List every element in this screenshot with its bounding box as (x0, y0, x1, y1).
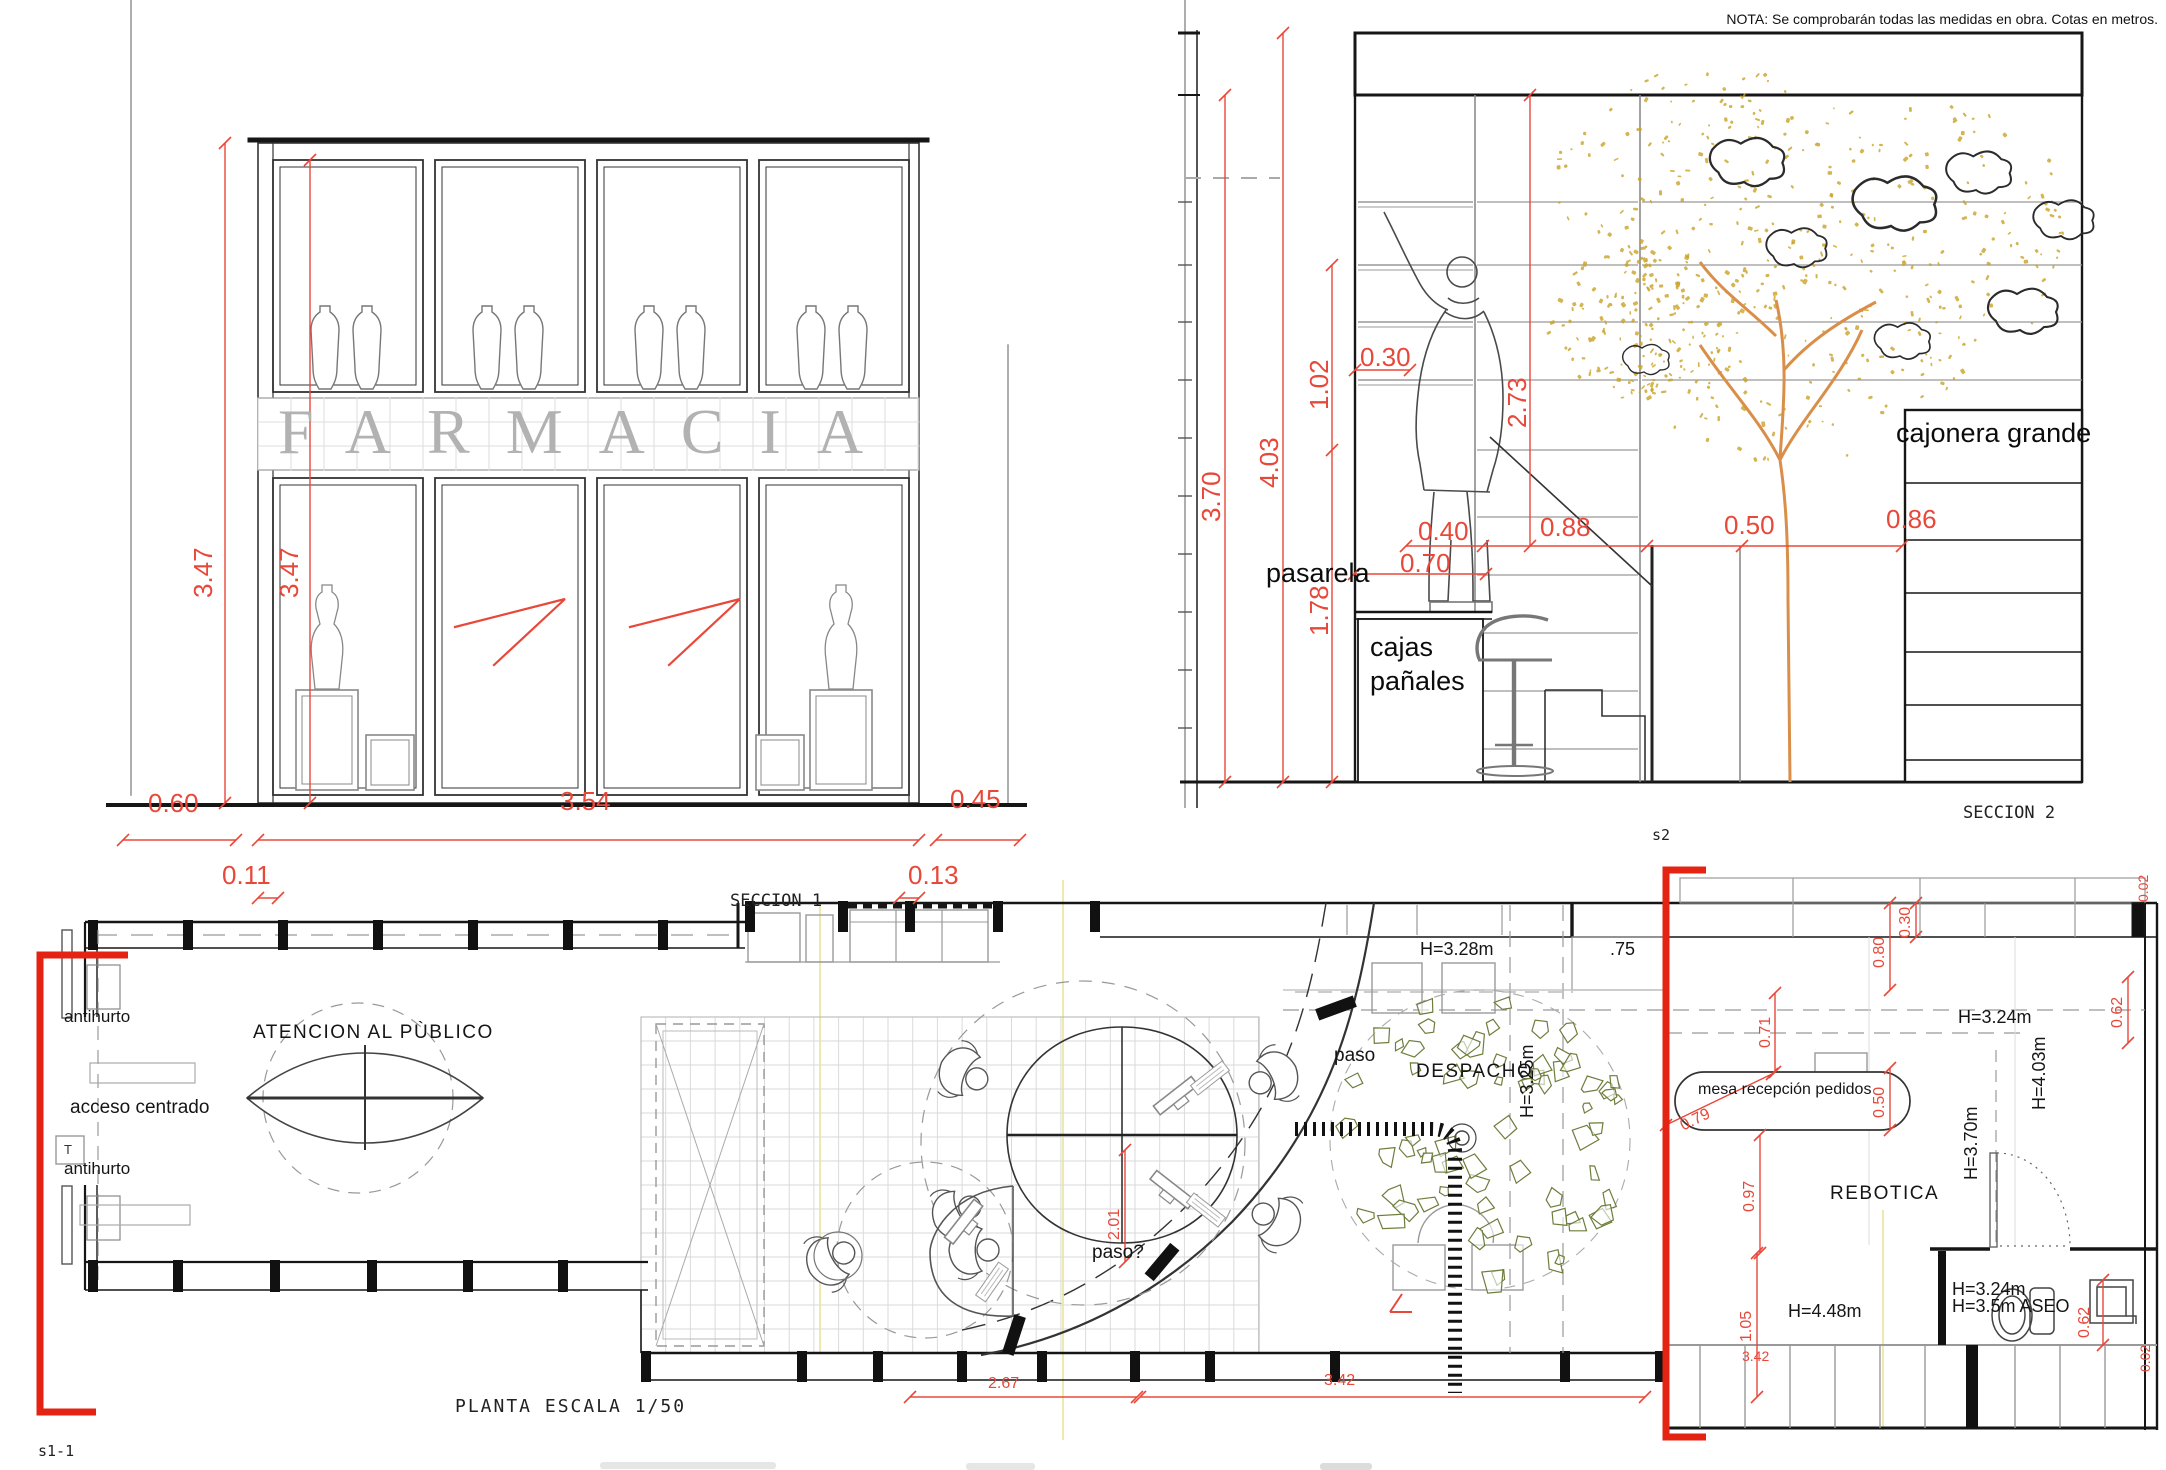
label-rebotica: REBOTICA (1830, 1184, 1939, 1203)
label-h325: H=3.25m (1518, 1044, 1536, 1118)
rebotica-shelving (1666, 1345, 2157, 1428)
dim-plan-267: 2.67 (988, 1376, 1019, 1392)
label-75: .75 (1610, 940, 1635, 958)
label-panales: pañales (1370, 668, 1465, 695)
label-pasarela: pasarela (1266, 560, 1370, 587)
label-antihurto-bottom: antihurto (64, 1160, 130, 1177)
section1-title: SECCION 1 (730, 893, 822, 910)
dim-plan-080: 0.80 (1872, 937, 1888, 968)
dim-plan-071: 0.71 (1758, 1017, 1774, 1048)
dim-s2-273: 2.73 (1504, 377, 1530, 428)
sink (2090, 1280, 2136, 1324)
dim-s2-040: 0.40 (1418, 518, 1469, 544)
dim-plan-050: 0.50 (1872, 1087, 1888, 1118)
dim-plan-342: 3.42 (1324, 1373, 1355, 1389)
dim-s2-370: 3.70 (1198, 471, 1224, 522)
cad-drawing-canvas: NOTA: Se comprobarán todas las medidas e… (0, 0, 2166, 1470)
dim-s2-030: 0.30 (1360, 344, 1411, 370)
dim-plan-105: 1.05 (1739, 1311, 1755, 1342)
display-pedestal-right (756, 690, 872, 790)
cajonera-grande-unit (1905, 410, 2082, 782)
dim-plan-097: 0.97 (1742, 1181, 1758, 1212)
dim-s2-178: 1.78 (1306, 585, 1332, 636)
label-paso-q: paso? (1092, 1243, 1144, 1262)
dim-s2-086: 0.86 (1886, 506, 1937, 532)
plan-title: PLANTA ESCALA 1/50 (455, 1398, 686, 1416)
farmacia-sign: FARMACIA (258, 400, 919, 464)
scrollbar-track-segment[interactable] (600, 1462, 776, 1469)
dim-s1-left: 0.60 (148, 790, 199, 816)
dim-plan-062b: 0.62 (2077, 1307, 2093, 1338)
scrollbar-thumb[interactable] (966, 1463, 1035, 1470)
dim-plan-062: 0.62 (2110, 997, 2126, 1028)
scrollbar-thumb-2[interactable] (1320, 1463, 1372, 1470)
curved-wall (952, 903, 1374, 1356)
marker-s2-label: s2 (1652, 828, 1670, 843)
label-h35-aseo: H=3.5m ASEO (1952, 1297, 2070, 1315)
dim-s1-main: 3.54 (560, 788, 611, 814)
label-h448: H=4.48m (1788, 1302, 1862, 1320)
dim-s1-offset-right: 0.13 (908, 862, 959, 888)
dim-s1-height-inner: 3.47 (276, 547, 302, 598)
dim-s2-088: 0.88 (1540, 514, 1591, 540)
label-paso: paso (1334, 1046, 1375, 1065)
nota-text: NOTA: Se comprobarán todas las medidas e… (1726, 12, 2158, 26)
drawing-linework (0, 0, 2166, 1470)
label-mesa-recepcion: mesa recepción pedidos (1698, 1082, 1871, 1098)
label-cajonera-grande: cajonera grande (1896, 420, 2091, 447)
dim-plan-342b: 3.42 (1742, 1349, 1769, 1363)
dim-s1-height: 3.47 (190, 547, 216, 598)
label-acceso-centrado: acceso centrado (70, 1098, 209, 1117)
label-antihurto-top: antihurto (64, 1008, 130, 1025)
dim-plan-201: 2.01 (1107, 1209, 1123, 1240)
dim-plan-002b: 0.02 (2138, 1345, 2152, 1372)
dim-s2-070: 0.70 (1400, 550, 1451, 576)
label-h370: H=3.70m (1962, 1106, 1980, 1180)
plan-tree (1330, 990, 1630, 1293)
label-h324: H=3.24m (1958, 1008, 2032, 1026)
top-wall-cd (1100, 878, 2157, 990)
label-atencion-publico: ATENCION AL PÙBLICO (253, 1023, 494, 1042)
dim-s1-right: 0.45 (950, 786, 1001, 812)
dim-s2-102: 1.02 (1306, 359, 1332, 410)
dim-s2-403: 4.03 (1256, 437, 1282, 488)
bottom-walls (85, 1260, 1666, 1382)
dim-plan-030: 0.30 (1898, 907, 1914, 938)
dim-plan-002a: 0.02 (2136, 875, 2150, 902)
extra-red-marks (1390, 1294, 1412, 1312)
label-despacho: DESPACHO (1416, 1062, 1533, 1081)
marker-s1-label: s1-1 (38, 1444, 74, 1459)
dim-s2-050: 0.50 (1724, 512, 1775, 538)
display-pedestal-left (296, 690, 414, 790)
label-cajas: cajas (1370, 634, 1433, 661)
label-t-box: T (64, 1143, 72, 1156)
section2-title: SECCION 2 (1963, 805, 2055, 822)
top-wall-a (85, 903, 745, 950)
small-desk-group (795, 1162, 1013, 1338)
dim-s1-offset-left: 0.11 (222, 862, 271, 888)
label-h403: H=4.03m (2030, 1036, 2048, 1110)
stool (1477, 616, 1553, 776)
plan-linework (56, 878, 2157, 1440)
label-h328: H=3.28m (1420, 940, 1494, 958)
